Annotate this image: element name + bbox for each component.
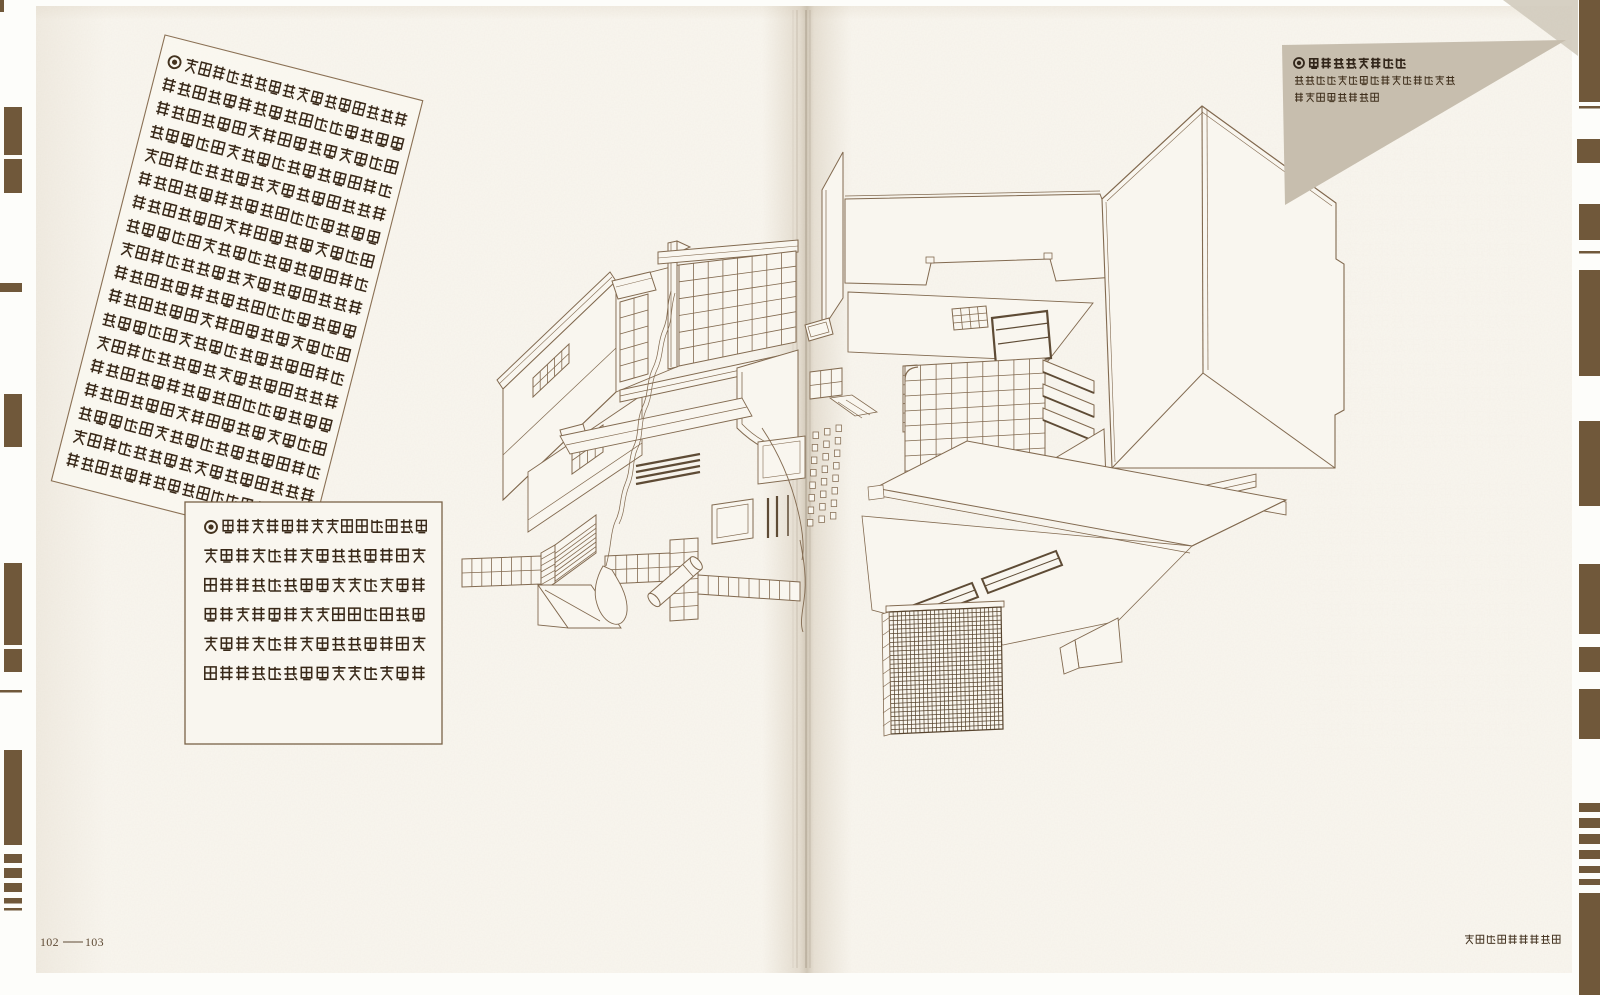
svg-text:102: 102 (40, 935, 59, 949)
svg-text:103: 103 (85, 935, 104, 949)
